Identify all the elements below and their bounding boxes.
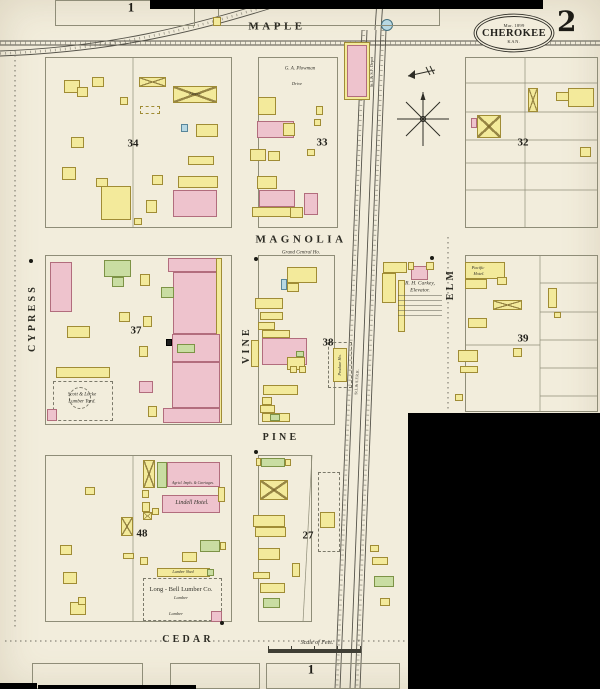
building [497, 277, 507, 285]
building [168, 258, 218, 272]
building [383, 262, 407, 273]
building [374, 576, 394, 587]
redaction-overlay [150, 0, 543, 9]
building [62, 167, 76, 180]
building [157, 462, 167, 488]
block-number: 48 [137, 529, 148, 540]
building [259, 190, 295, 207]
map-title-oval: Mar. 1899 CHEROKEE KAN. [476, 16, 552, 50]
poi-label: Drive [292, 82, 302, 87]
building [268, 151, 280, 161]
building [139, 346, 148, 357]
scale-bar [268, 646, 361, 653]
building [426, 262, 434, 270]
poi-label: Lumber [174, 596, 188, 601]
compass-north-tip [421, 92, 426, 100]
saw-shed-outline [69, 387, 91, 409]
building [104, 260, 131, 277]
map-city-title: CHEROKEE [482, 28, 546, 39]
building [458, 350, 478, 362]
building [285, 459, 291, 466]
building [188, 156, 214, 165]
building [152, 175, 163, 185]
poi-label: Livery [189, 92, 201, 97]
poi-label: Agricl. Impls. & Carriages. [172, 482, 214, 486]
building [370, 545, 379, 552]
building [251, 340, 259, 367]
building [260, 312, 283, 320]
building [123, 553, 134, 559]
building [299, 366, 306, 373]
building [347, 45, 367, 97]
building [548, 288, 557, 308]
building [172, 362, 220, 408]
building [253, 572, 270, 579]
building [258, 97, 276, 115]
building [134, 218, 142, 225]
building [112, 277, 124, 287]
poi-label: Produce Ho. [338, 354, 342, 375]
building [290, 366, 297, 373]
building [121, 517, 133, 536]
building [140, 274, 150, 286]
building [380, 598, 390, 606]
sheet-number: 2 [557, 5, 576, 38]
building [213, 17, 221, 26]
block-number: 34 [128, 139, 139, 150]
building [382, 273, 396, 303]
poi-label: Lumber Yard. [68, 400, 95, 405]
building [148, 406, 157, 417]
street-label: ELM [446, 268, 456, 300]
utility-dot [29, 259, 33, 263]
building [67, 326, 90, 338]
building [471, 118, 477, 128]
building [455, 394, 463, 401]
building [270, 414, 280, 421]
utility-dot [254, 257, 258, 261]
building [307, 149, 315, 156]
poi-label: Scott & Locke [68, 393, 96, 398]
building [372, 557, 388, 565]
poi-label: G. A. Plowman [285, 67, 315, 72]
north-arrow-icon [408, 70, 415, 79]
map-state: KAN. [507, 39, 520, 44]
building [287, 283, 299, 292]
street-label: CEDAR [162, 635, 214, 645]
redaction-overlay [408, 413, 600, 689]
block-outline [465, 57, 598, 228]
poi-label: Lumber [169, 612, 183, 617]
building [47, 409, 57, 421]
poi-label: Grand Central Ho. [282, 251, 320, 256]
building [96, 178, 108, 187]
building [528, 88, 538, 112]
building [258, 548, 280, 560]
building [262, 397, 272, 405]
street-label: MAGNOLIA [255, 235, 346, 246]
building [580, 147, 591, 157]
sanborn-map-canvas: Mar. 1899 CHEROKEE KAN. 2 MAPLEMAGNOLIAP… [0, 0, 600, 689]
block-number: 33 [317, 138, 328, 149]
building [290, 207, 303, 218]
building [465, 279, 487, 289]
poi-label: Scale of Feet. [301, 640, 334, 646]
building [255, 527, 286, 537]
redaction-overlay [0, 683, 37, 689]
building [568, 88, 594, 107]
building [92, 77, 104, 87]
building [85, 487, 95, 495]
block-number: 27 [303, 531, 314, 542]
poi-label: Long - Bell Lumber Co. [149, 587, 212, 594]
poi-label: Lumber Shed [172, 570, 193, 574]
building [281, 279, 287, 290]
building [304, 193, 318, 215]
building [166, 339, 172, 346]
railroad-track-frisco [360, 30, 386, 689]
building [260, 480, 288, 500]
building [142, 502, 150, 512]
building [207, 569, 214, 576]
redaction-overlay [38, 685, 196, 689]
building [460, 366, 478, 373]
building [139, 77, 166, 87]
poi-label: Lindell Hotel. [175, 500, 208, 506]
building [71, 137, 84, 148]
building [287, 267, 317, 283]
building [218, 487, 225, 502]
building [260, 405, 275, 413]
building [260, 583, 285, 593]
building [177, 344, 195, 353]
utility-dot [430, 256, 434, 260]
building [60, 545, 72, 555]
building [477, 115, 501, 138]
building [140, 557, 148, 565]
building [253, 515, 285, 527]
building [320, 512, 335, 528]
adjacent-sheet-ref: 1 [128, 1, 135, 14]
building [196, 124, 218, 137]
poi-label: Pacific [472, 266, 485, 271]
building [143, 316, 152, 327]
building [292, 563, 300, 577]
building [161, 287, 174, 298]
building [258, 322, 275, 330]
building [146, 200, 157, 213]
building [250, 149, 266, 161]
building [50, 262, 72, 312]
building [261, 458, 285, 467]
building [262, 330, 290, 338]
building [182, 552, 197, 562]
building [78, 597, 86, 605]
building [178, 176, 218, 188]
block-number: 38 [323, 338, 334, 349]
building [493, 300, 522, 310]
street-label: MAPLE [248, 22, 305, 33]
poi-label: St.L.& S.F. Depot [370, 57, 374, 87]
building [139, 381, 153, 393]
building [255, 298, 283, 309]
building [56, 367, 110, 378]
building [263, 385, 298, 395]
street-label: VINE [242, 326, 252, 364]
building [554, 312, 561, 318]
poi-label: Elevator. [410, 288, 430, 294]
block-number: 32 [518, 138, 529, 149]
building [142, 490, 149, 498]
building [468, 318, 487, 328]
building [143, 512, 152, 520]
building [283, 123, 295, 136]
railroad-ties [357, 30, 383, 689]
fine-print-text [398, 295, 442, 319]
building [152, 508, 159, 515]
poi-label: Hotel. [473, 272, 484, 277]
utility-dot [254, 450, 258, 454]
building [263, 598, 280, 608]
building [63, 572, 77, 584]
building [220, 542, 226, 550]
building [513, 348, 522, 357]
building [120, 97, 128, 105]
block-number: 37 [131, 326, 142, 337]
building [143, 460, 155, 488]
building [140, 106, 160, 114]
poi-label: R. H. Carkey, [405, 281, 435, 287]
building [163, 408, 220, 423]
block-outline [266, 663, 400, 689]
building [408, 262, 414, 270]
building [101, 186, 131, 220]
adjacent-sheet-ref: 1 [308, 663, 315, 676]
building [316, 106, 323, 115]
building [200, 540, 220, 552]
street-label: CYPRESS [28, 284, 38, 352]
utility-dot [220, 621, 224, 625]
building [181, 124, 188, 132]
building [173, 190, 217, 217]
building [77, 87, 88, 97]
block-number: 39 [518, 334, 529, 345]
building [173, 272, 220, 334]
street-label: PINE [263, 433, 300, 443]
building [257, 176, 277, 189]
railroad-track-frisco [355, 30, 381, 689]
building [119, 312, 130, 322]
building [314, 119, 321, 126]
